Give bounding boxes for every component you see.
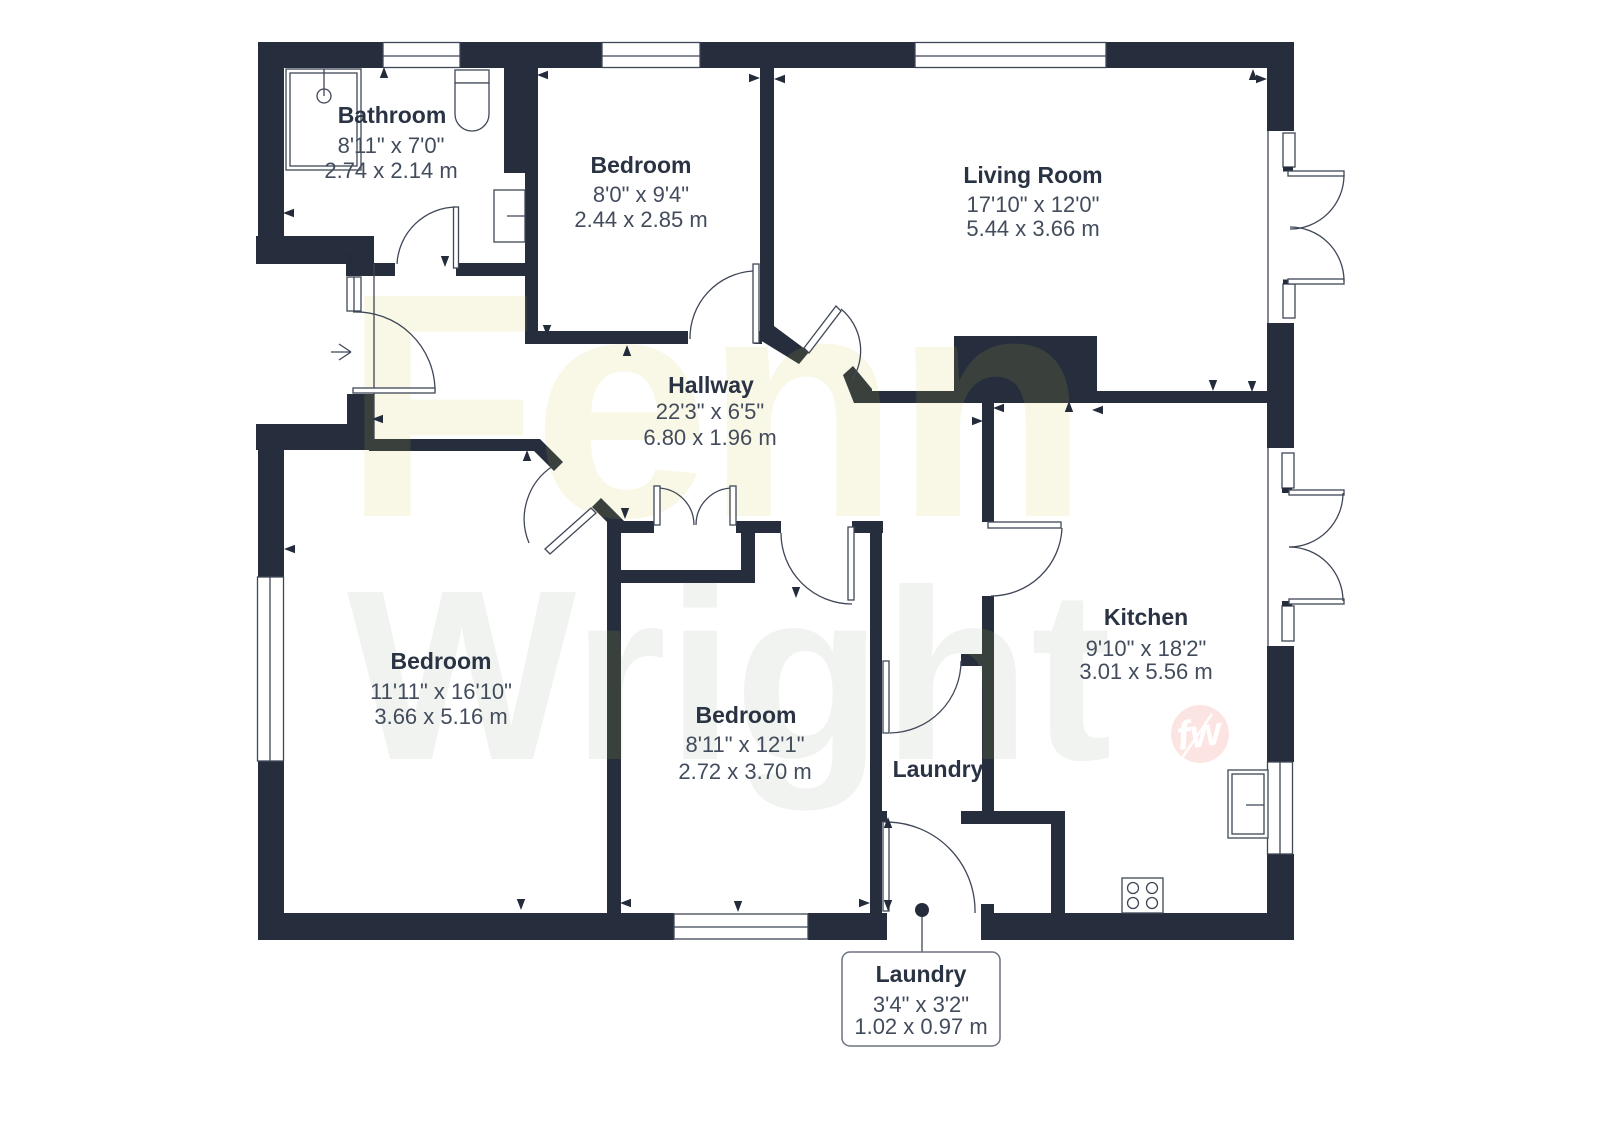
- svg-text:2.74 x 2.14 m: 2.74 x 2.14 m: [324, 158, 457, 183]
- svg-text:3.66 x 5.16 m: 3.66 x 5.16 m: [374, 704, 507, 729]
- svg-text:1.02 x 0.97 m: 1.02 x 0.97 m: [854, 1014, 987, 1039]
- svg-text:Bedroom: Bedroom: [591, 152, 692, 178]
- svg-text:Laundry: Laundry: [893, 756, 984, 782]
- svg-text:5.44 x 3.66 m: 5.44 x 3.66 m: [966, 216, 1099, 241]
- svg-text:Hallway: Hallway: [668, 372, 754, 398]
- svg-text:Bedroom: Bedroom: [696, 702, 797, 728]
- svg-text:11'11" x 16'10": 11'11" x 16'10": [370, 679, 512, 704]
- svg-text:8'11" x 12'1": 8'11" x 12'1": [685, 732, 804, 757]
- svg-text:17'10" x 12'0": 17'10" x 12'0": [967, 192, 1100, 217]
- svg-text:8'0" x 9'4": 8'0" x 9'4": [593, 182, 689, 207]
- svg-text:Laundry: Laundry: [876, 961, 967, 987]
- svg-text:2.72 x 3.70 m: 2.72 x 3.70 m: [678, 759, 811, 784]
- svg-text:3.01 x 5.56 m: 3.01 x 5.56 m: [1079, 659, 1212, 684]
- svg-text:8'11" x 7'0": 8'11" x 7'0": [338, 133, 445, 158]
- svg-text:9'10" x 18'2": 9'10" x 18'2": [1086, 636, 1207, 661]
- svg-text:Bathroom: Bathroom: [338, 102, 447, 128]
- svg-text:2.44 x 2.85 m: 2.44 x 2.85 m: [574, 207, 707, 232]
- svg-text:Bedroom: Bedroom: [391, 648, 492, 674]
- svg-text:Living Room: Living Room: [963, 162, 1102, 188]
- svg-text:Kitchen: Kitchen: [1104, 604, 1188, 630]
- svg-text:22'3" x 6'5": 22'3" x 6'5": [656, 399, 764, 424]
- svg-text:6.80 x 1.96 m: 6.80 x 1.96 m: [643, 425, 776, 450]
